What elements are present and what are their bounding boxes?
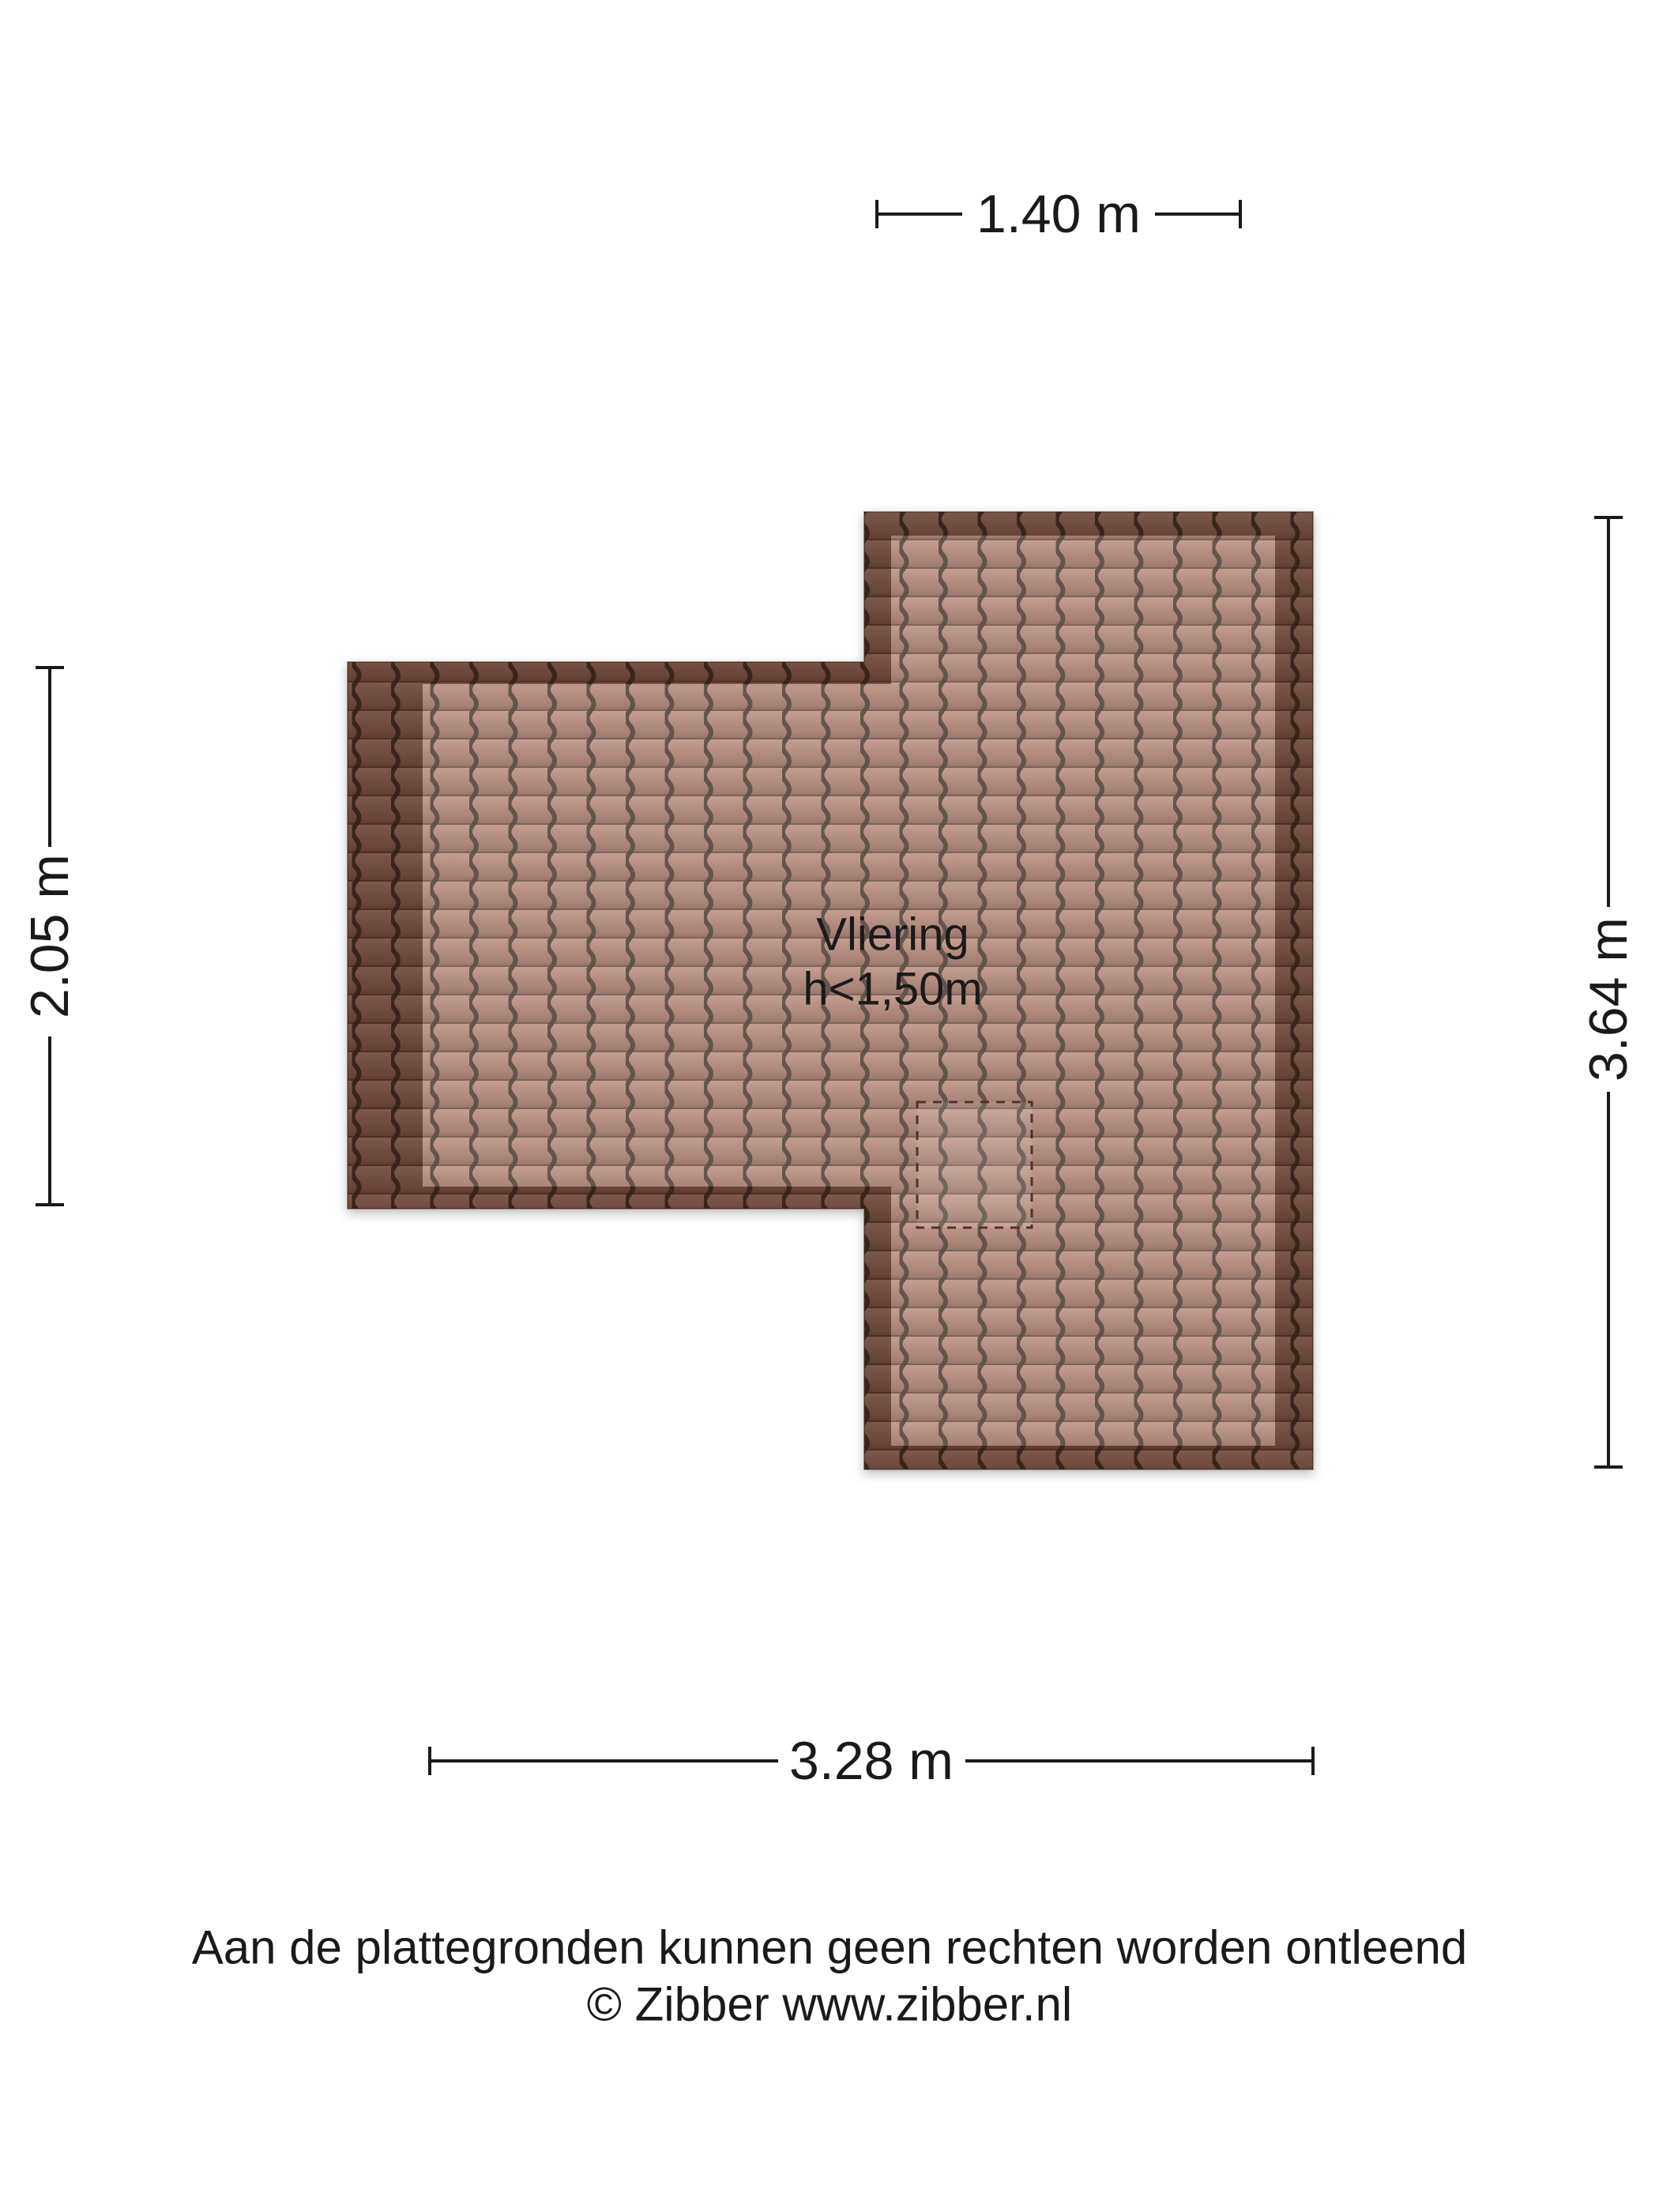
dimension-left: 2.05 m xyxy=(20,668,80,1205)
page: Vliering h<1,50m 1.40 m 2.05 m 3.64 m 3.… xyxy=(0,0,1659,2212)
footer: Aan de plattegronden kunnen geen rechten… xyxy=(192,1921,1468,2031)
room-label: Vliering xyxy=(816,909,969,961)
dimension-bottom: 3.28 m xyxy=(430,1731,1313,1791)
dimension-label: 3.28 m xyxy=(789,1731,954,1791)
dimension-right: 3.64 m xyxy=(1578,517,1638,1467)
dimension-label: 1.40 m xyxy=(976,184,1141,244)
copyright-text: © Zibber www.zibber.nl xyxy=(587,1978,1072,2031)
dimension-label: 3.64 m xyxy=(1578,917,1638,1082)
hatch-opening xyxy=(917,1102,1032,1228)
dimension-top: 1.40 m xyxy=(877,184,1240,244)
dimension-label: 2.05 m xyxy=(20,854,80,1018)
floor-plan: Vliering h<1,50m xyxy=(348,512,1313,1469)
floor-plan-canvas: Vliering h<1,50m 1.40 m 2.05 m 3.64 m 3.… xyxy=(0,0,1659,2212)
disclaimer-text: Aan de plattegronden kunnen geen rechten… xyxy=(192,1921,1468,1974)
room-height-label: h<1,50m xyxy=(803,964,982,1015)
